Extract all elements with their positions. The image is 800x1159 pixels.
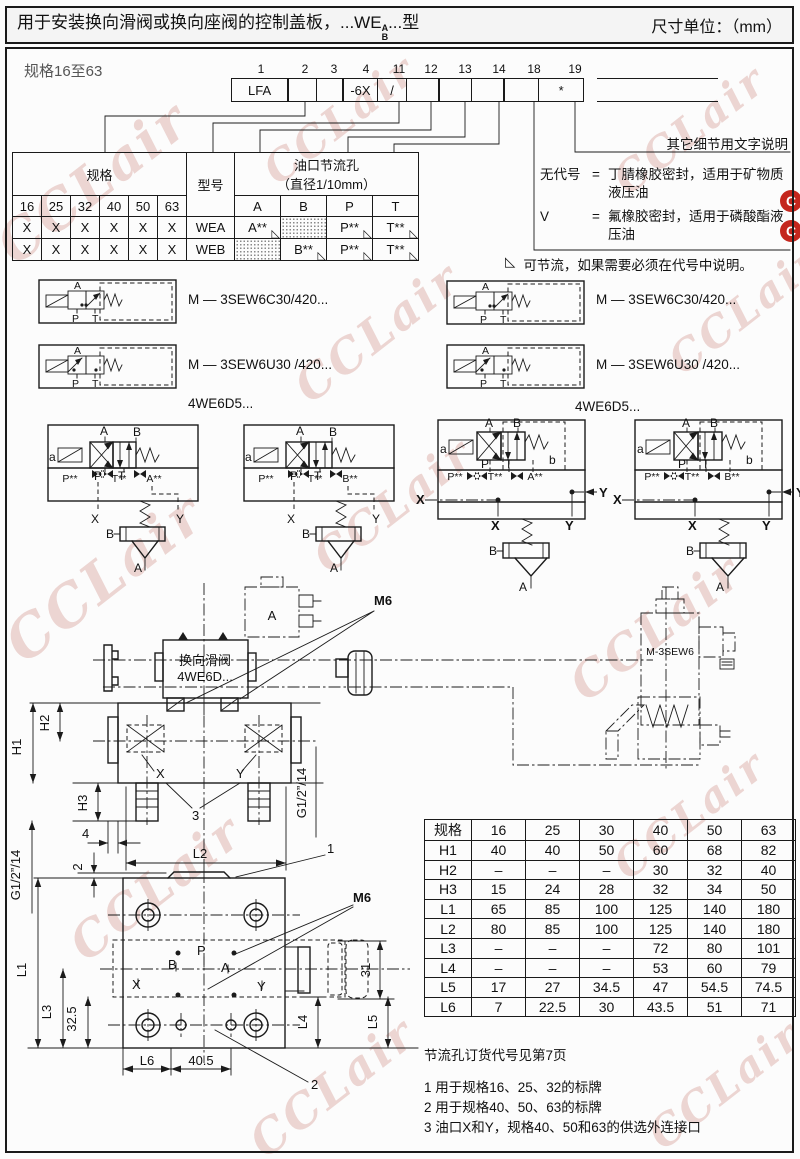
footnote-2: 2 用于规格40、50、63的标牌 bbox=[424, 1096, 602, 1116]
code-box: / bbox=[377, 78, 407, 102]
code-box bbox=[406, 78, 440, 102]
footnote-1: 1 用于规格16、25、32的标牌 bbox=[424, 1076, 602, 1096]
mark-cell: X bbox=[42, 217, 71, 239]
size-col: 40 bbox=[634, 820, 688, 841]
code-pos: 3 bbox=[320, 62, 348, 76]
model-header: 型号 bbox=[187, 153, 235, 217]
code-pos: 18 bbox=[516, 62, 552, 76]
code-box: LFA bbox=[231, 78, 289, 102]
table-row: L16585100125140180 bbox=[425, 899, 796, 919]
code-pos: 2 bbox=[290, 62, 320, 76]
size-cell: 32 bbox=[71, 196, 100, 217]
mark-cell: X bbox=[129, 217, 158, 239]
throttle-cell: P**◺ bbox=[327, 239, 373, 261]
table-row: H2–––303240 bbox=[425, 860, 796, 880]
throttle-triangle-icon: ◺ bbox=[318, 251, 326, 262]
symbol-code-label: M — 3SEW6U30 /420... bbox=[596, 357, 740, 372]
code-box-extension bbox=[597, 78, 718, 102]
units-label: 尺寸单位：（mm） bbox=[651, 13, 782, 37]
table-row-web: X X X X X X WEB B**◺ P**◺ T**◺ bbox=[13, 239, 419, 261]
size-cell: 16 bbox=[13, 196, 42, 217]
model-cell: WEA bbox=[187, 217, 235, 239]
other-details-note: 其它细节用文字说明 bbox=[598, 133, 788, 153]
size-range-label: 规格16至63 bbox=[24, 60, 102, 81]
we-valve-label: 4WE6D5... bbox=[188, 396, 253, 411]
seal-note-fkm: V=氟橡胶密封，适用于磷酸酯液压油 bbox=[540, 208, 792, 244]
size-cell: 63 bbox=[158, 196, 187, 217]
code-pos: 14 bbox=[482, 62, 516, 76]
table-header-row: 规格 16 25 30 40 50 63 bbox=[425, 820, 796, 841]
code-box: -6X bbox=[342, 78, 378, 102]
throttle-cell-blocked bbox=[235, 239, 281, 261]
code-pos: 11 bbox=[384, 62, 414, 76]
table-row: L6722.53043.55171 bbox=[425, 997, 796, 1017]
port-header: P bbox=[327, 196, 373, 217]
throttle-triangle-icon: ◺ bbox=[505, 254, 515, 274]
mark-cell: X bbox=[158, 239, 187, 261]
page-header: 用于安装换向滑阀或换向座阀的控制盖板，...WEAB...型 尺寸单位：（mm） bbox=[5, 6, 794, 44]
size-col: 50 bbox=[688, 820, 742, 841]
spec-throttle-table: 规格 型号 油口节流孔（直径1/10mm） 16 25 32 40 50 63 … bbox=[12, 152, 419, 261]
size-col: 63 bbox=[742, 820, 796, 841]
size-cell: 25 bbox=[42, 196, 71, 217]
port-header: B bbox=[281, 196, 327, 217]
throttle-note: ◺ 可节流，如果需要必须在代号中说明。 bbox=[505, 254, 753, 274]
port-header: A bbox=[235, 196, 281, 217]
throttle-cell: T**◺ bbox=[373, 239, 419, 261]
footnote-3: 3 油口X和Y，规格40、50和63的供选外连接口 bbox=[424, 1116, 701, 1136]
dimension-table: 规格 16 25 30 40 50 63 H1404050606882 H2––… bbox=[424, 819, 796, 1017]
datasheet-page: CCLair CCLair CCLair CCLair CCLair CCLai… bbox=[0, 0, 800, 1159]
corner-cell: 规格 bbox=[425, 820, 472, 841]
orifice-footnote: 节流孔订货代号见第7页 bbox=[424, 1044, 567, 1064]
throttle-cell: T**◺ bbox=[373, 217, 419, 239]
mark-cell: X bbox=[100, 217, 129, 239]
code-box bbox=[316, 78, 344, 102]
size-col: 16 bbox=[472, 820, 526, 841]
page-title: 用于安装换向滑阀或换向座阀的控制盖板，...WEAB...型 bbox=[17, 8, 419, 42]
throttle-cell: A**◺ bbox=[235, 217, 281, 239]
code-pos: 12 bbox=[414, 62, 448, 76]
mark-cell: X bbox=[13, 239, 42, 261]
mark-cell: X bbox=[129, 239, 158, 261]
throttle-cell: P**◺ bbox=[327, 217, 373, 239]
seal-note-nbr: 无代号=丁腈橡胶密封，适用于矿物质液压油 bbox=[540, 166, 792, 202]
seal-notes: 无代号=丁腈橡胶密封，适用于矿物质液压油 V=氟橡胶密封，适用于磷酸酯液压油 bbox=[540, 166, 792, 244]
code-position-numbers: 1 2 3 4 11 12 13 14 18 19 bbox=[232, 62, 598, 76]
size-cell: 40 bbox=[100, 196, 129, 217]
code-pos: 1 bbox=[232, 62, 290, 76]
code-box bbox=[287, 78, 317, 102]
mark-cell: X bbox=[13, 217, 42, 239]
throttle-triangle-icon: ◺ bbox=[364, 251, 372, 262]
throttle-cell: B**◺ bbox=[281, 239, 327, 261]
throttle-cell-blocked bbox=[281, 217, 327, 239]
code-pos: 19 bbox=[552, 62, 598, 76]
external-y-label: Y bbox=[796, 485, 800, 500]
mark-cell: X bbox=[71, 217, 100, 239]
port-header: T bbox=[373, 196, 419, 217]
mark-cell: X bbox=[158, 217, 187, 239]
code-box bbox=[471, 78, 505, 102]
spec-header: 规格 bbox=[13, 153, 187, 196]
table-row-wea: X X X X X X WEA A**◺ P**◺ T**◺ bbox=[13, 217, 419, 239]
code-box: * bbox=[538, 78, 584, 102]
model-cell: WEB bbox=[187, 239, 235, 261]
size-col: 25 bbox=[526, 820, 580, 841]
table-row: L3–––7280101 bbox=[425, 938, 796, 958]
size-cell: 50 bbox=[129, 196, 158, 217]
symbol-code-label: M — 3SEW6C30/420... bbox=[188, 292, 328, 307]
table-row: L28085100125140180 bbox=[425, 919, 796, 939]
throttle-triangle-icon: ◺ bbox=[410, 251, 418, 262]
table-row: H3152428323450 bbox=[425, 880, 796, 900]
code-pos: 13 bbox=[448, 62, 482, 76]
mark-cell: X bbox=[100, 239, 129, 261]
table-row: H1404050606882 bbox=[425, 841, 796, 861]
symbol-code-label: M — 3SEW6C30/420... bbox=[596, 292, 736, 307]
mark-cell: X bbox=[42, 239, 71, 261]
table-row: L4–––536079 bbox=[425, 958, 796, 978]
table-row: L5172734.54754.574.5 bbox=[425, 978, 796, 998]
we-valve-label: 4WE6D5... bbox=[575, 399, 640, 414]
code-boxes: LFA -6X / * bbox=[232, 78, 584, 102]
mark-cell: X bbox=[71, 239, 100, 261]
code-box bbox=[503, 78, 539, 102]
code-pos: 4 bbox=[348, 62, 384, 76]
throttle-header: 油口节流孔（直径1/10mm） bbox=[235, 153, 419, 196]
code-box bbox=[438, 78, 472, 102]
size-col: 30 bbox=[580, 820, 634, 841]
symbol-code-label: M — 3SEW6U30 /420... bbox=[188, 357, 332, 372]
